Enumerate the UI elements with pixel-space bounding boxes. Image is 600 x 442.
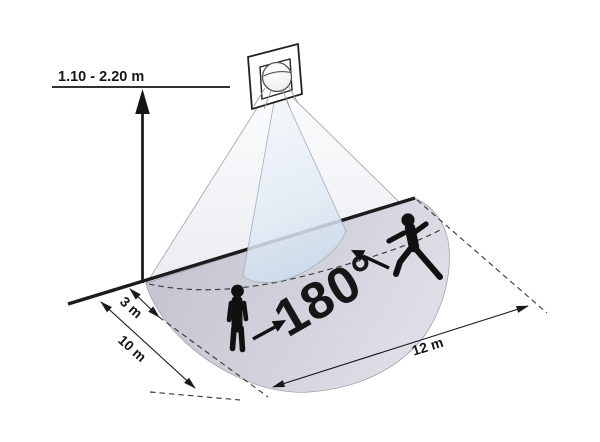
- coverage-diagram: 180°: [0, 0, 600, 442]
- up-arrow-icon: [135, 89, 150, 114]
- sensor-sphere-lens: [263, 63, 292, 92]
- diagram-canvas: 180°: [0, 0, 600, 442]
- mounting-height-label: 1.10 - 2.20 m: [58, 69, 144, 85]
- witness-line-bottom: [150, 392, 240, 400]
- dim-3m-label: 3 m: [117, 293, 146, 321]
- dim-10m-label: 10 m: [115, 332, 149, 365]
